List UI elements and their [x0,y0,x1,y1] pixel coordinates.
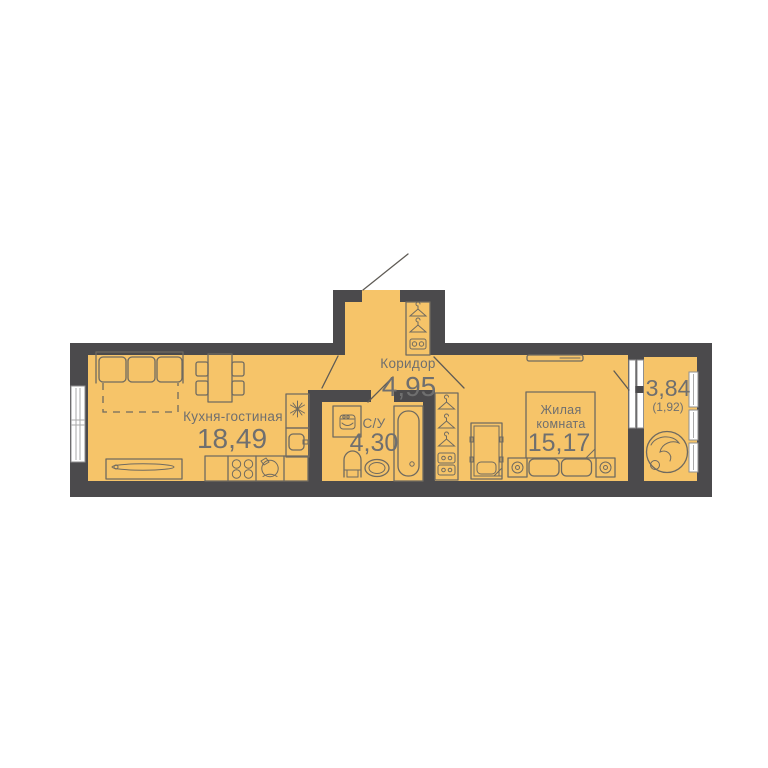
bathroom-room-area: 4,30 [350,429,399,457]
bathroom-top-wall-left [308,390,371,402]
bathroom-right-wall [423,402,435,481]
corridor-room-name: Коридор [380,356,435,371]
floorplan-drawing: Кухня-гостиная 18,49 Коридор 4,95 С/У 4,… [0,0,768,768]
balcony-area: 3,84 [646,375,691,401]
bedroom-room-area: 15,17 [528,429,591,457]
kitchen-room-area: 18,49 [197,423,267,454]
entrance-door-swing [363,254,408,290]
kitchen-window [71,386,85,462]
bedroom-room-name-line1: Жилая [540,403,581,417]
entrance-door-opening [362,290,400,303]
floorplan-canvas: Кухня-гостиная 18,49 Коридор 4,95 С/У 4,… [0,0,768,768]
kitchen-bathroom-wall [308,390,322,481]
corridor-room-area: 4,95 [382,371,437,402]
kitchen-room-name: Кухня-гостиная [183,409,283,424]
balcony-area-reduced: (1,92) [652,400,683,414]
